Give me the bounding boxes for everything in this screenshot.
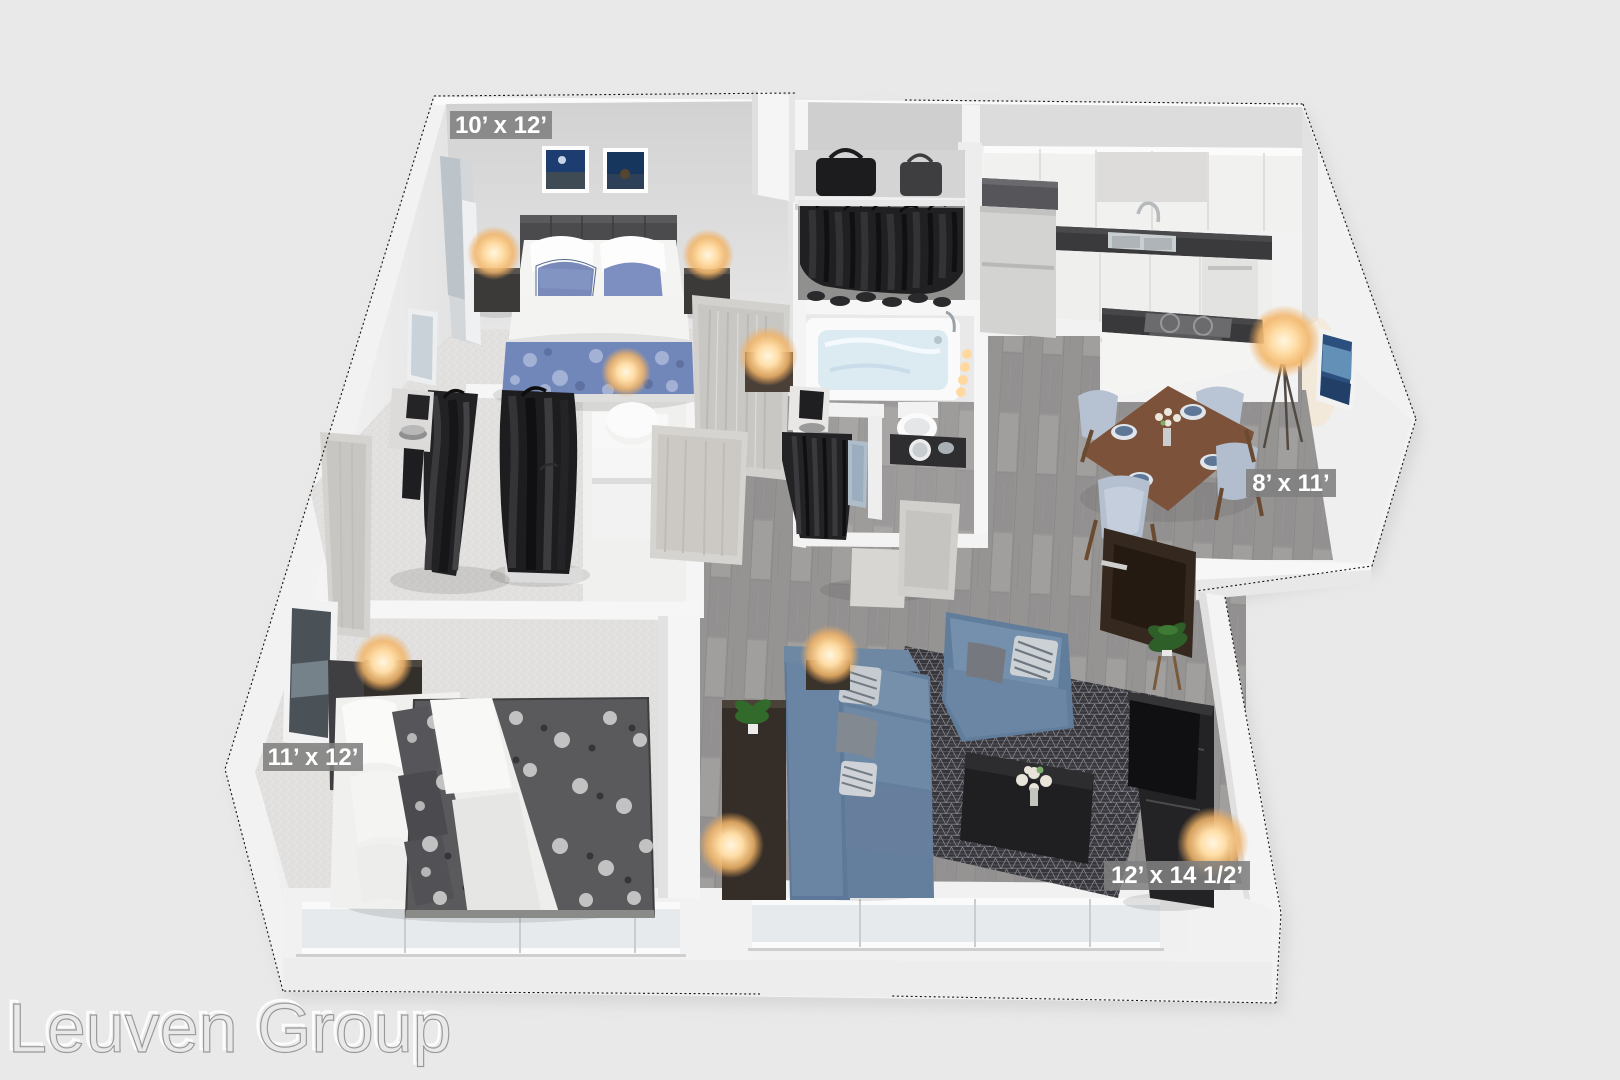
svg-text:11’ x 12’: 11’ x 12’ bbox=[268, 744, 359, 771]
svg-text:8’ x 11’: 8’ x 11’ bbox=[1252, 470, 1329, 497]
svg-text:12’ x 14 1/2’: 12’ x 14 1/2’ bbox=[1111, 862, 1243, 889]
svg-text:Leuven Group: Leuven Group bbox=[8, 989, 452, 1067]
svg-text:10’ x 12’: 10’ x 12’ bbox=[455, 112, 547, 139]
